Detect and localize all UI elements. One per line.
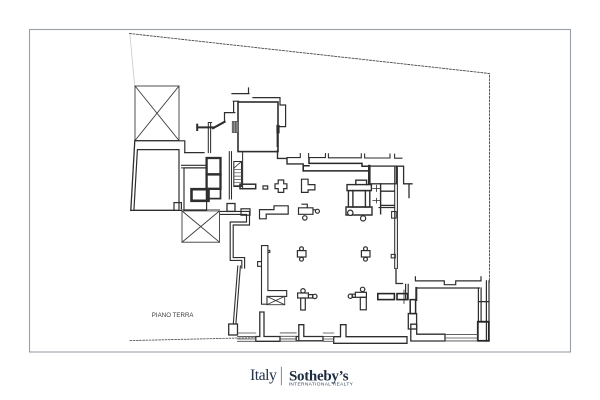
svg-text:Italy: Italy [250, 367, 277, 384]
svg-text:PIANO TERRA: PIANO TERRA [152, 312, 195, 319]
svg-text:INTERNATIONAL REALTY: INTERNATIONAL REALTY [289, 382, 354, 388]
